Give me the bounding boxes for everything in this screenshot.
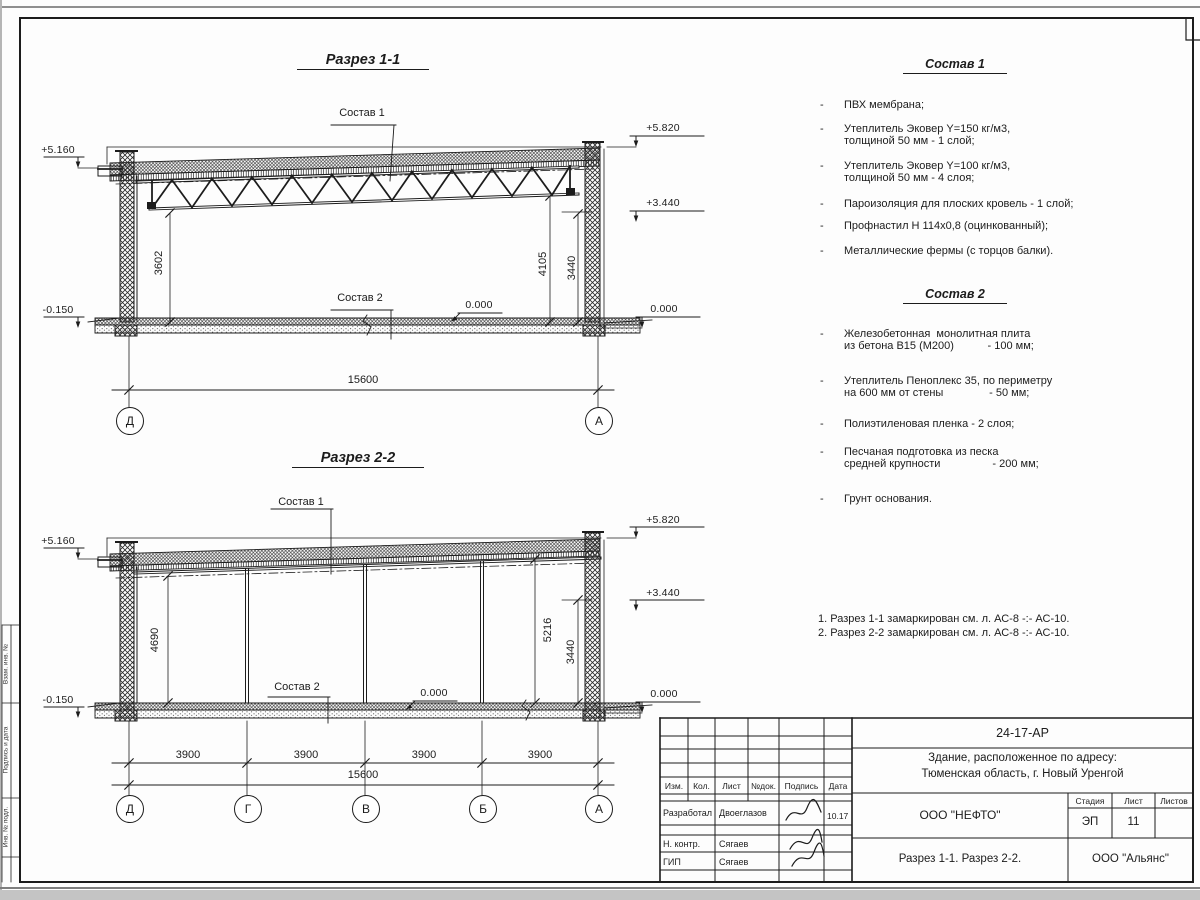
section2-dim-right-a: 5216 [542,618,554,642]
axis-label: А [595,802,603,816]
section2-dim-left: 4690 [149,628,161,652]
section2-elev-floor: 0.000 [411,687,457,699]
section2-sostav2-label: Состав 2 [264,681,330,693]
frame-label-inv: Инв. № подл. [3,807,10,848]
item-text: Утеплитель Эковер Y=150 кг/м3, толщиной … [844,123,1010,148]
section2-title: Разрез 2-2 [292,450,424,468]
bullet-dash: - [820,418,844,430]
sostav1-heading: Состав 1 [903,57,1007,74]
axis-bubble-g-2: Г [234,795,262,823]
bullet-dash: - [820,446,844,471]
sostav1-item: -ПВХ мембрана; [820,99,924,111]
section2-elev-parapet: +5.160 [34,535,82,547]
section1-elev-ground: -0.150 [34,304,82,316]
note-2: 2. Разрез 2-2 замаркирован см. л. АС-8 -… [818,627,1069,639]
section1-elev-top: +5.820 [634,122,692,134]
bullet-dash: - [820,328,844,353]
col-kol: Кол. [688,781,715,791]
row-name-razrabotal: Двоеглазов [719,808,767,818]
frame-label-podpis: Подпись и дата [3,727,10,774]
section2-elev-top: +5.820 [634,514,692,526]
section1-sostav2-label: Состав 2 [327,292,393,304]
item-text: Грунт основания. [844,493,932,505]
sostav2-item: -Полиэтиленовая пленка - 2 слоя; [820,418,1014,430]
item-text: Песчаная подготовка из песка средней кру… [844,446,1039,471]
section1-elev-floor: 0.000 [456,299,502,311]
row-date-razrabotal: 10.17 [827,811,848,821]
sostav1-item: -Утеплитель Эковер Y=100 кг/м3, толщиной… [820,160,1010,185]
axis-bubble-b-2: Б [469,795,497,823]
bullet-dash: - [820,245,844,257]
section2-span-3: 3900 [394,749,454,761]
section2-dim-right-b: 3440 [565,640,577,664]
sostav2-item: -Песчаная подготовка из песка средней кр… [820,446,1039,471]
item-text: Пароизоляция для плоских кровель - 1 сло… [844,198,1074,210]
col-podpis: Подпись [779,781,824,791]
section2-elev-ground: -0.150 [34,694,82,706]
section2-elev-zero: 0.000 [638,688,690,700]
project-name-line1: Здание, расположенное по адресу: [852,752,1193,764]
sheets-label: Листов [1155,796,1193,806]
axis-bubble-v-2: В [352,795,380,823]
section1-elev-zero: 0.000 [638,303,690,315]
row-role-gip: ГИП [663,857,681,867]
section1-dim-total: 15600 [320,374,406,386]
section1-dim-right-b: 3440 [566,256,578,280]
col-list: Лист [715,781,748,791]
sostav1-item: -Пароизоляция для плоских кровель - 1 сл… [820,198,1074,210]
sostav2-item: -Железобетонная монолитная плита из бето… [820,328,1034,353]
project-name-line2: Тюменская область, г. Новый Уренгой [852,768,1193,780]
section1-dim-right-a: 4105 [537,252,549,276]
section2-span-1: 3900 [158,749,218,761]
stage-label: Стадия [1068,796,1112,806]
item-text: Утеплитель Пеноплекс 35, по периметру на… [844,375,1052,400]
item-text: Металлические фермы (с торцов балки). [844,245,1053,257]
axis-bubble-d-1: Д [116,407,144,435]
bullet-dash: - [820,123,844,148]
drawing-sheet: Взам. инв. № Подпись и дата Инв. № подл.… [0,0,1200,900]
item-text: Полиэтиленовая пленка - 2 слоя; [844,418,1014,430]
bullet-dash: - [820,99,844,111]
signature-razrabotal [786,799,821,820]
doc-number: 24-17-АР [852,726,1193,740]
sostav2-heading: Состав 2 [903,287,1007,304]
section1-elev-mid: +3.440 [634,197,692,209]
sostav1-item: -Металлические фермы (с торцов балки). [820,245,1053,257]
sheet-label: Лист [1112,796,1155,806]
bullet-dash: - [820,493,844,505]
item-text: Железобетонная монолитная плита из бетон… [844,328,1034,353]
axis-bubble-d-2: Д [116,795,144,823]
sostav1-item: -Профнастил Н 114х0,8 (оцинкованный); [820,220,1048,232]
stage-value: ЭП [1068,816,1112,828]
axis-label: Б [479,802,487,816]
item-text: Профнастил Н 114х0,8 (оцинкованный); [844,220,1048,232]
section1-dim-left: 3602 [153,251,165,275]
bullet-dash: - [820,375,844,400]
section1-elev-parapet: +5.160 [34,144,82,156]
bullet-dash: - [820,160,844,185]
col-izm: Изм. [660,781,688,791]
row-role-nkontr: Н. контр. [663,839,700,849]
row-name-gip: Сягаев [719,857,748,867]
col-ndok: №док. [748,781,779,791]
section2-elev-mid: +3.440 [634,587,692,599]
col-data: Дата [824,781,852,791]
section2-span-4: 3900 [510,749,570,761]
bullet-dash: - [820,220,844,232]
sostav2-item: -Утеплитель Пеноплекс 35, по периметру н… [820,375,1052,400]
section1-title: Разрез 1-1 [297,52,429,70]
frame-label-vzam: Взам. инв. № [3,644,10,684]
item-text: Утеплитель Эковер Y=100 кг/м3, толщиной … [844,160,1010,185]
sheet-title: Разрез 1-1. Разрез 2-2. [852,853,1068,865]
item-text: ПВХ мембрана; [844,99,924,111]
section2-sostav1-label: Состав 1 [268,496,334,508]
sostav2-item: -Грунт основания. [820,493,932,505]
row-role-razrabotal: Разработал [663,808,712,818]
sheet-number: 11 [1112,816,1155,828]
company-name: ООО "НЕФТО" [852,808,1068,822]
bullet-dash: - [820,198,844,210]
axis-bubble-a-1: А [585,407,613,435]
note-1: 1. Разрез 1-1 замаркирован см. л. АС-8 -… [818,613,1069,625]
axis-label: В [362,802,370,816]
signature-gip [792,843,824,866]
contractor-name: ООО "Альянс" [1068,853,1193,865]
sostav1-item: -Утеплитель Эковер Y=150 кг/м3, толщиной… [820,123,1010,148]
axis-label: А [595,414,603,428]
row-name-nkontr: Сягаев [719,839,748,849]
section2-span-2: 3900 [276,749,336,761]
section1-sostav1-label: Состав 1 [329,107,395,119]
axis-label: Д [126,802,134,816]
axis-bubble-a-2: А [585,795,613,823]
axis-label: Д [126,414,134,428]
section2-dim-total: 15600 [320,769,406,781]
axis-label: Г [245,802,252,816]
